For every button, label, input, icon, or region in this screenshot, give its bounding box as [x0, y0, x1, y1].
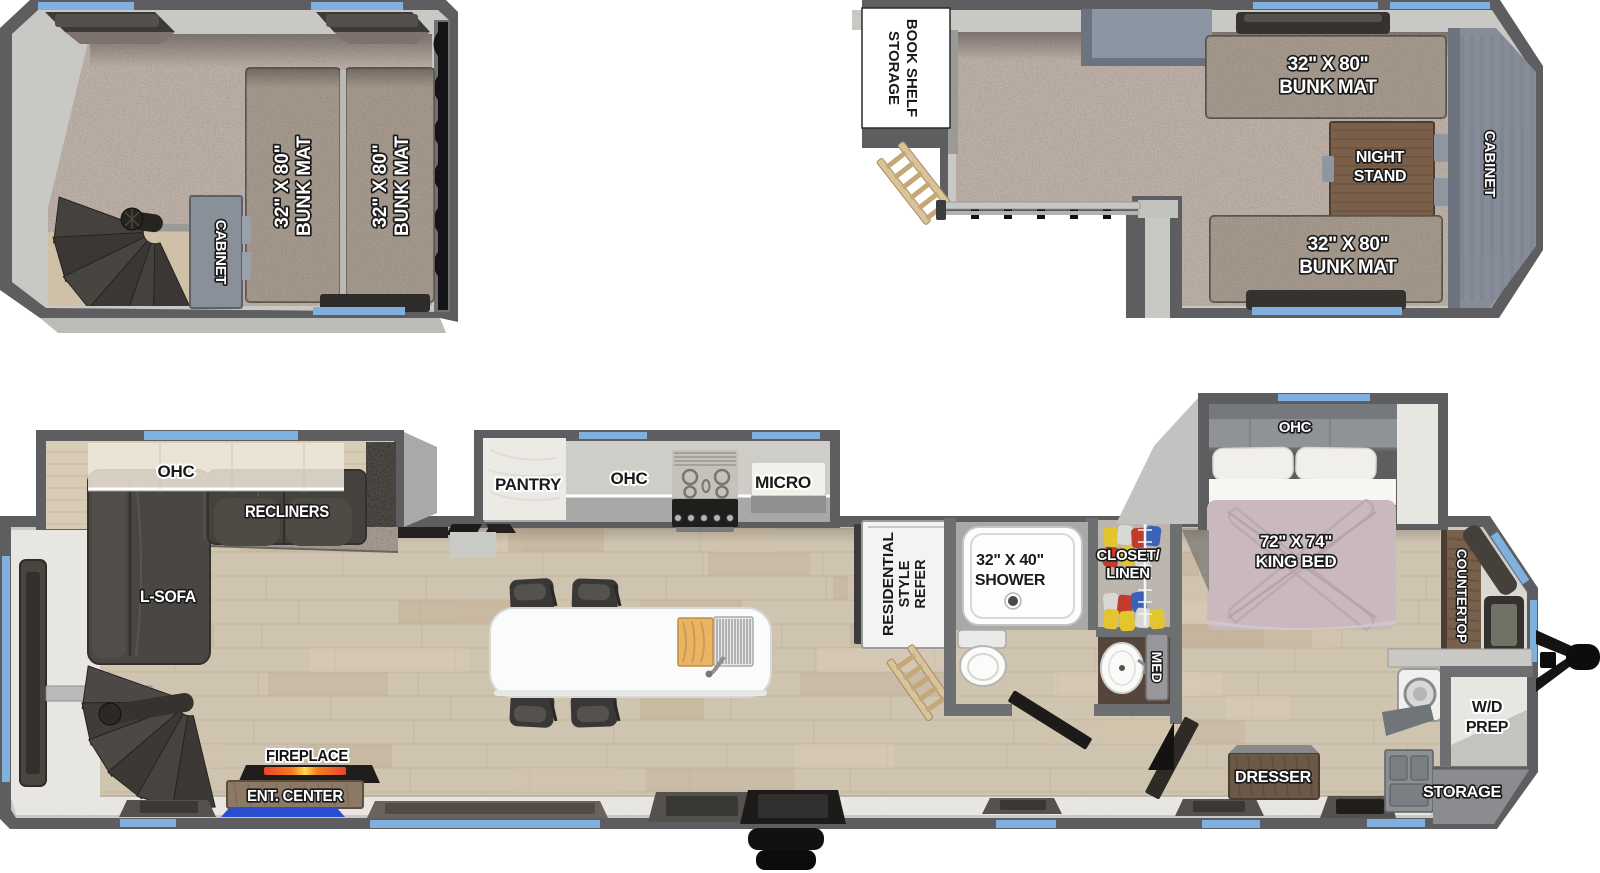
svg-text:BOOK SHELF: BOOK SHELF [903, 19, 920, 117]
svg-text:MICRO: MICRO [755, 473, 811, 492]
svg-text:OHC: OHC [611, 469, 648, 488]
svg-text:FIREPLACE: FIREPLACE [266, 748, 349, 765]
svg-text:STORAGE: STORAGE [1423, 784, 1502, 801]
svg-text:PREP: PREP [1466, 719, 1509, 736]
svg-text:RECLINERS: RECLINERS [245, 503, 329, 521]
svg-text:LINEN: LINEN [1106, 565, 1150, 582]
svg-text:STAND: STAND [1354, 168, 1406, 185]
svg-text:COUNTERTOP: COUNTERTOP [1454, 549, 1469, 643]
svg-text:72" X 74": 72" X 74" [1260, 532, 1332, 551]
svg-text:STORAGE: STORAGE [885, 31, 902, 105]
svg-text:ENT. CENTER: ENT. CENTER [247, 788, 344, 805]
svg-text:RESIDENTIAL: RESIDENTIAL [881, 532, 897, 636]
svg-text:L-SOFA: L-SOFA [140, 587, 196, 606]
svg-text:32" X 80": 32" X 80" [1308, 234, 1389, 255]
svg-text:32" X 80": 32" X 80" [370, 144, 391, 228]
svg-text:NIGHT: NIGHT [1356, 149, 1405, 166]
svg-text:32" X 80": 32" X 80" [1288, 54, 1369, 75]
svg-text:BUNK MAT: BUNK MAT [392, 136, 413, 236]
svg-text:KING BED: KING BED [1256, 552, 1337, 571]
svg-text:PANTRY: PANTRY [495, 475, 562, 494]
svg-text:BUNK MAT: BUNK MAT [1299, 257, 1397, 278]
svg-text:BUNK MAT: BUNK MAT [1279, 77, 1377, 98]
svg-text:OHC: OHC [1279, 419, 1312, 436]
svg-text:SHOWER: SHOWER [975, 572, 1046, 589]
svg-text:32" X 40": 32" X 40" [976, 552, 1044, 569]
svg-text:32" X 80": 32" X 80" [272, 144, 293, 228]
svg-text:STYLE: STYLE [897, 560, 913, 607]
svg-text:REFER: REFER [913, 559, 929, 609]
svg-text:CLOSET/: CLOSET/ [1097, 547, 1161, 564]
svg-text:CABINET: CABINET [1481, 131, 1498, 198]
svg-text:BUNK MAT: BUNK MAT [294, 136, 315, 236]
svg-text:MED: MED [1149, 651, 1165, 682]
svg-text:CABINET: CABINET [212, 220, 229, 285]
svg-text:OHC: OHC [158, 462, 195, 481]
svg-text:W/D: W/D [1472, 699, 1502, 716]
svg-text:DRESSER: DRESSER [1235, 769, 1312, 786]
